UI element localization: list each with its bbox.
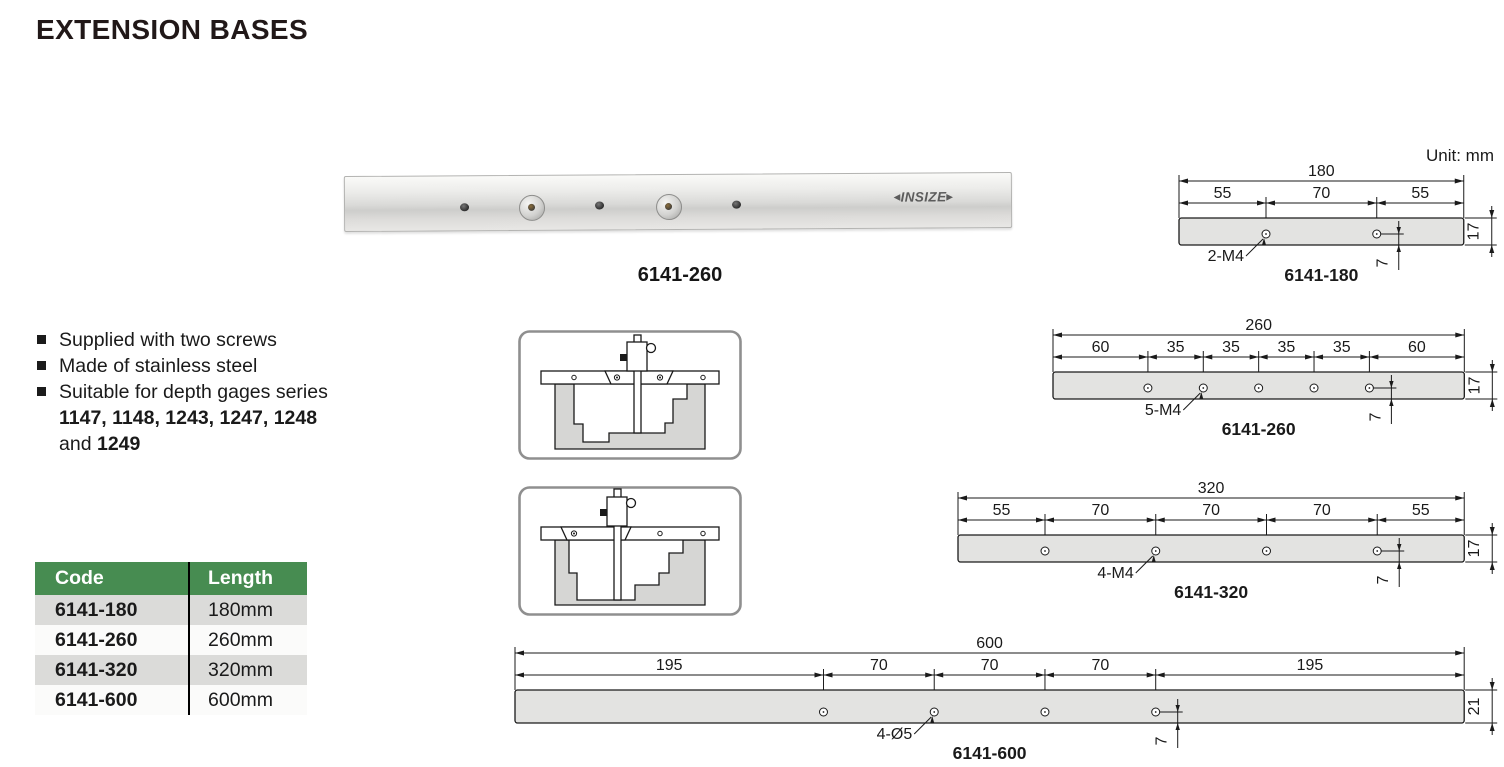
hole-center-dot xyxy=(1368,387,1370,389)
dimension-arrow-icon xyxy=(1397,562,1401,569)
total-length-label: 180 xyxy=(1308,163,1335,180)
segment-length-label: 35 xyxy=(1277,339,1295,356)
hole-center-dot xyxy=(1376,550,1378,552)
total-length-label: 260 xyxy=(1245,317,1272,334)
dimension-arrow-icon xyxy=(1147,518,1156,523)
product-photo: ◀INSIZE▶ xyxy=(344,172,1012,232)
hole-center-dot xyxy=(823,711,825,713)
thumb-roller xyxy=(627,499,636,508)
dimension-arrow-icon xyxy=(1139,355,1148,360)
screw-hole xyxy=(460,203,469,211)
gage-slider xyxy=(607,497,627,526)
dimension-arrow-icon xyxy=(1455,518,1464,523)
hole-center-dot xyxy=(1266,550,1268,552)
screw-hole xyxy=(732,201,741,209)
segment-length-label: 70 xyxy=(870,657,888,674)
dimension-arrow-icon xyxy=(1156,518,1165,523)
dimension-arrow-icon xyxy=(1455,179,1464,184)
codes-table: Code Length 6141-180180mm6141-260260mm61… xyxy=(35,562,307,715)
base-bar xyxy=(1179,218,1464,245)
segment-length-label: 70 xyxy=(981,657,999,674)
dimension-arrow-icon xyxy=(1397,245,1401,252)
drawing-6141-180: 1805570551772-M46141-180 xyxy=(1173,162,1504,291)
table-row: 6141-260260mm xyxy=(35,625,307,655)
column-header-code: Code xyxy=(35,562,189,595)
code-cell: 6141-320 xyxy=(35,655,189,685)
page-title: EXTENSION BASES xyxy=(36,14,308,46)
dimension-arrow-icon xyxy=(925,673,934,678)
thumb-roller xyxy=(647,344,656,353)
dimension-arrow-icon xyxy=(1045,518,1054,523)
dimension-arrow-icon xyxy=(1490,723,1495,731)
hole-center-dot xyxy=(1258,387,1260,389)
feature-text: Made of stainless steel xyxy=(59,353,257,379)
dimension-arrow-icon xyxy=(958,496,967,501)
bullet-square-icon xyxy=(37,361,46,370)
hole-center-dot xyxy=(1044,711,1046,713)
dimension-arrow-icon xyxy=(1179,201,1188,206)
dimension-arrow-icon xyxy=(1045,673,1054,678)
dimension-arrow-icon xyxy=(1179,179,1188,184)
mount-screw-dot xyxy=(616,377,618,379)
segment-length-label: 35 xyxy=(1222,339,1240,356)
feature-text: Suitable for depth gages series 1147, 11… xyxy=(59,379,328,457)
length-cell: 180mm xyxy=(189,595,307,625)
segment-length-label: 70 xyxy=(1313,502,1331,519)
mount-screw-dot xyxy=(659,377,661,379)
bullet-square-icon xyxy=(37,387,46,396)
dimension-arrow-icon xyxy=(1148,355,1157,360)
hole-center-dot xyxy=(1265,233,1267,235)
dimension-arrow-icon xyxy=(1036,673,1045,678)
base-hole xyxy=(701,375,705,379)
dimension-arrow-icon xyxy=(1203,355,1212,360)
hole-spec-label: 4-M4 xyxy=(1097,565,1134,582)
feature-item: Made of stainless steel xyxy=(36,353,426,379)
table-header-row: Code Length xyxy=(35,562,307,595)
dimension-arrow-icon xyxy=(1156,673,1165,678)
thickness-label: 17 xyxy=(1466,377,1483,395)
code-cell: 6141-260 xyxy=(35,625,189,655)
clamp-knob xyxy=(600,509,607,516)
dimension-arrow-icon xyxy=(1194,355,1203,360)
total-length-label: 320 xyxy=(1198,480,1225,497)
hole-offset-label: 7 xyxy=(1375,575,1392,584)
dimension-arrow-icon xyxy=(1369,355,1378,360)
segment-length-label: 70 xyxy=(1091,657,1109,674)
thickness-label: 17 xyxy=(1466,223,1483,241)
segment-length-label: 55 xyxy=(1214,185,1232,202)
screw-center xyxy=(665,203,672,210)
hole-center-dot xyxy=(1044,550,1046,552)
usage-diagram-2 xyxy=(517,485,743,617)
catalog-page: EXTENSION BASES ◀INSIZE▶ 6141-260 Suppli… xyxy=(0,0,1504,767)
dimension-arrow-icon xyxy=(1377,518,1386,523)
base-hole xyxy=(701,531,705,535)
segment-length-label: 70 xyxy=(1202,502,1220,519)
dimension-arrow-icon xyxy=(1360,355,1369,360)
screw xyxy=(656,194,682,220)
dimension-arrow-icon xyxy=(958,518,967,523)
dimension-arrow-icon xyxy=(1147,673,1156,678)
length-cell: 260mm xyxy=(189,625,307,655)
dimension-arrow-icon xyxy=(1490,364,1495,372)
insize-logo: ◀INSIZE▶ xyxy=(894,189,953,204)
dimension-arrow-icon xyxy=(1250,355,1259,360)
code-cell: 6141-600 xyxy=(35,685,189,715)
mount-screw-dot xyxy=(573,533,575,535)
drawing-title: 6141-180 xyxy=(1284,265,1358,285)
dimension-arrow-icon xyxy=(934,673,943,678)
screw-hole xyxy=(595,201,604,209)
dimension-arrow-icon xyxy=(515,651,524,656)
dimension-arrow-icon xyxy=(1257,201,1266,206)
dimension-arrow-icon xyxy=(1490,399,1495,407)
total-length-label: 600 xyxy=(976,635,1003,652)
column-header-length: Length xyxy=(189,562,307,595)
segment-length-label: 55 xyxy=(1411,185,1429,202)
screw xyxy=(519,195,545,221)
drawing-6141-600: 6001957070701952174-Ø56141-600 xyxy=(509,634,1504,767)
dimension-arrow-icon xyxy=(1389,399,1393,406)
hole-center-dot xyxy=(1147,387,1149,389)
logo-right-arrow-icon: ▶ xyxy=(946,192,953,201)
dimension-arrow-icon xyxy=(1259,355,1268,360)
table-row: 6141-320320mm xyxy=(35,655,307,685)
dimension-arrow-icon xyxy=(1455,201,1464,206)
segment-length-label: 195 xyxy=(656,657,683,674)
dimension-arrow-icon xyxy=(1455,333,1464,338)
feature-item: Supplied with two screws xyxy=(36,327,426,353)
drawing-6141-320: 32055707070551774-M46141-320 xyxy=(952,479,1504,608)
segment-length-label: 70 xyxy=(1312,185,1330,202)
base-bar xyxy=(958,535,1464,562)
dimension-arrow-icon xyxy=(1266,518,1275,523)
series-number: 1249 xyxy=(97,433,140,455)
dimension-arrow-icon xyxy=(1176,723,1180,730)
hole-center-dot xyxy=(1202,387,1204,389)
dimension-arrow-icon xyxy=(1489,245,1494,253)
dimension-arrow-icon xyxy=(1305,355,1314,360)
codes-table-body: 6141-180180mm6141-260260mm6141-320320mm6… xyxy=(35,595,307,715)
clamp-knob xyxy=(620,354,627,361)
hole-spec-label: 5-M4 xyxy=(1145,402,1182,419)
dimension-arrow-icon xyxy=(814,673,823,678)
segment-length-label: 195 xyxy=(1297,657,1324,674)
segment-length-label: 35 xyxy=(1167,339,1185,356)
dimension-arrow-icon xyxy=(1368,201,1377,206)
screw-center xyxy=(528,204,535,211)
segment-length-label: 55 xyxy=(1412,502,1430,519)
base-bar xyxy=(515,690,1464,723)
hole-offset-label: 7 xyxy=(1367,412,1384,421)
dimension-arrow-icon xyxy=(1490,562,1495,570)
hole-center-dot xyxy=(1376,233,1378,235)
feature-item: Suitable for depth gages series 1147, 11… xyxy=(36,379,426,457)
feature-list: Supplied with two screws Made of stainle… xyxy=(36,327,426,457)
logo-text: INSIZE xyxy=(900,189,946,204)
segment-length-label: 35 xyxy=(1333,339,1351,356)
length-cell: 600mm xyxy=(189,685,307,715)
dimension-arrow-icon xyxy=(1314,355,1323,360)
thickness-label: 17 xyxy=(1466,540,1483,558)
thickness-label: 21 xyxy=(1466,698,1483,716)
gage-slider xyxy=(627,342,647,371)
length-cell: 320mm xyxy=(189,655,307,685)
hole-center-dot xyxy=(1155,711,1157,713)
feature-text-line: and xyxy=(59,433,92,455)
segment-length-label: 70 xyxy=(1091,502,1109,519)
dimension-arrow-icon xyxy=(1257,518,1266,523)
hole-spec-label: 2-M4 xyxy=(1208,248,1245,265)
table-row: 6141-180180mm xyxy=(35,595,307,625)
dimension-arrow-icon xyxy=(1053,355,1062,360)
dimension-arrow-icon xyxy=(1455,673,1464,678)
dimension-arrow-icon xyxy=(1053,333,1062,338)
dimension-arrow-icon xyxy=(823,673,832,678)
bullet-square-icon xyxy=(37,335,46,344)
dimension-arrow-icon xyxy=(1036,518,1045,523)
table-row: 6141-600600mm xyxy=(35,685,307,715)
hole-center-dot xyxy=(933,711,935,713)
dimension-arrow-icon xyxy=(1490,682,1495,690)
dimension-arrow-icon xyxy=(1455,355,1464,360)
series-numbers: 1147, 1148, 1243, 1247, 1248 xyxy=(59,407,317,429)
dimension-arrow-icon xyxy=(1489,210,1494,218)
dimension-arrow-icon xyxy=(515,673,524,678)
drawing-title: 6141-260 xyxy=(1222,419,1296,439)
photo-caption: 6141-260 xyxy=(530,264,830,287)
dimension-arrow-icon xyxy=(1266,201,1275,206)
hole-offset-label: 7 xyxy=(1154,736,1171,745)
hole-center-dot xyxy=(1313,387,1315,389)
dimension-arrow-icon xyxy=(1377,201,1386,206)
segment-length-label: 60 xyxy=(1408,339,1426,356)
hole-spec-label: 4-Ø5 xyxy=(877,726,913,743)
base-hole xyxy=(658,531,662,535)
drawing-6141-260: 2606035353535601775-M46141-260 xyxy=(1047,316,1504,445)
code-cell: 6141-180 xyxy=(35,595,189,625)
segment-length-label: 60 xyxy=(1092,339,1110,356)
base-hole xyxy=(572,375,576,379)
drawing-title: 6141-600 xyxy=(953,743,1027,763)
dimension-arrow-icon xyxy=(1368,518,1377,523)
segment-length-label: 55 xyxy=(993,502,1011,519)
dimension-arrow-icon xyxy=(1455,651,1464,656)
feature-text-line: Suitable for depth gages series xyxy=(59,381,328,403)
usage-diagram-1 xyxy=(517,329,743,461)
drawing-title: 6141-320 xyxy=(1174,582,1248,602)
dimension-arrow-icon xyxy=(1490,527,1495,535)
hole-offset-label: 7 xyxy=(1375,258,1392,267)
dimension-arrow-icon xyxy=(1455,496,1464,501)
hole-center-dot xyxy=(1155,550,1157,552)
feature-text: Supplied with two screws xyxy=(59,327,277,353)
